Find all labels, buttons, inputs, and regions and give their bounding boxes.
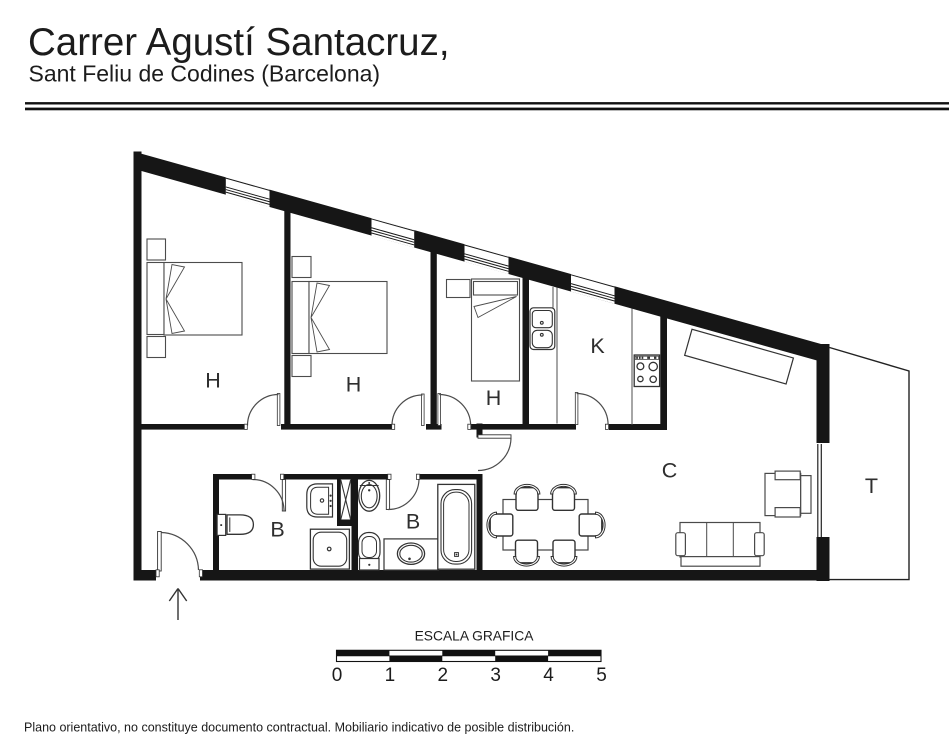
svg-text:Sant Feliu de Codines (Barcelo: Sant Feliu de Codines (Barcelona) xyxy=(29,61,381,87)
svg-text:B: B xyxy=(270,518,284,542)
svg-text:H: H xyxy=(205,369,221,393)
svg-text:K: K xyxy=(590,334,605,358)
svg-text:0: 0 xyxy=(332,665,343,686)
svg-text:C: C xyxy=(662,459,678,483)
svg-text:Carrer Agustí Santacruz,: Carrer Agustí Santacruz, xyxy=(28,21,450,64)
svg-text:4: 4 xyxy=(543,665,554,686)
svg-text:H: H xyxy=(486,386,502,410)
svg-text:2: 2 xyxy=(438,665,449,686)
svg-text:T: T xyxy=(865,474,878,498)
svg-text:5: 5 xyxy=(596,665,607,686)
svg-text:1: 1 xyxy=(385,665,396,686)
svg-text:H: H xyxy=(346,373,362,397)
svg-text:3: 3 xyxy=(490,665,501,686)
svg-text:Plano orientativo, no constitu: Plano orientativo, no constituye documen… xyxy=(24,721,574,735)
svg-text:ESCALA GRAFICA: ESCALA GRAFICA xyxy=(415,629,535,644)
svg-text:B: B xyxy=(406,510,420,534)
